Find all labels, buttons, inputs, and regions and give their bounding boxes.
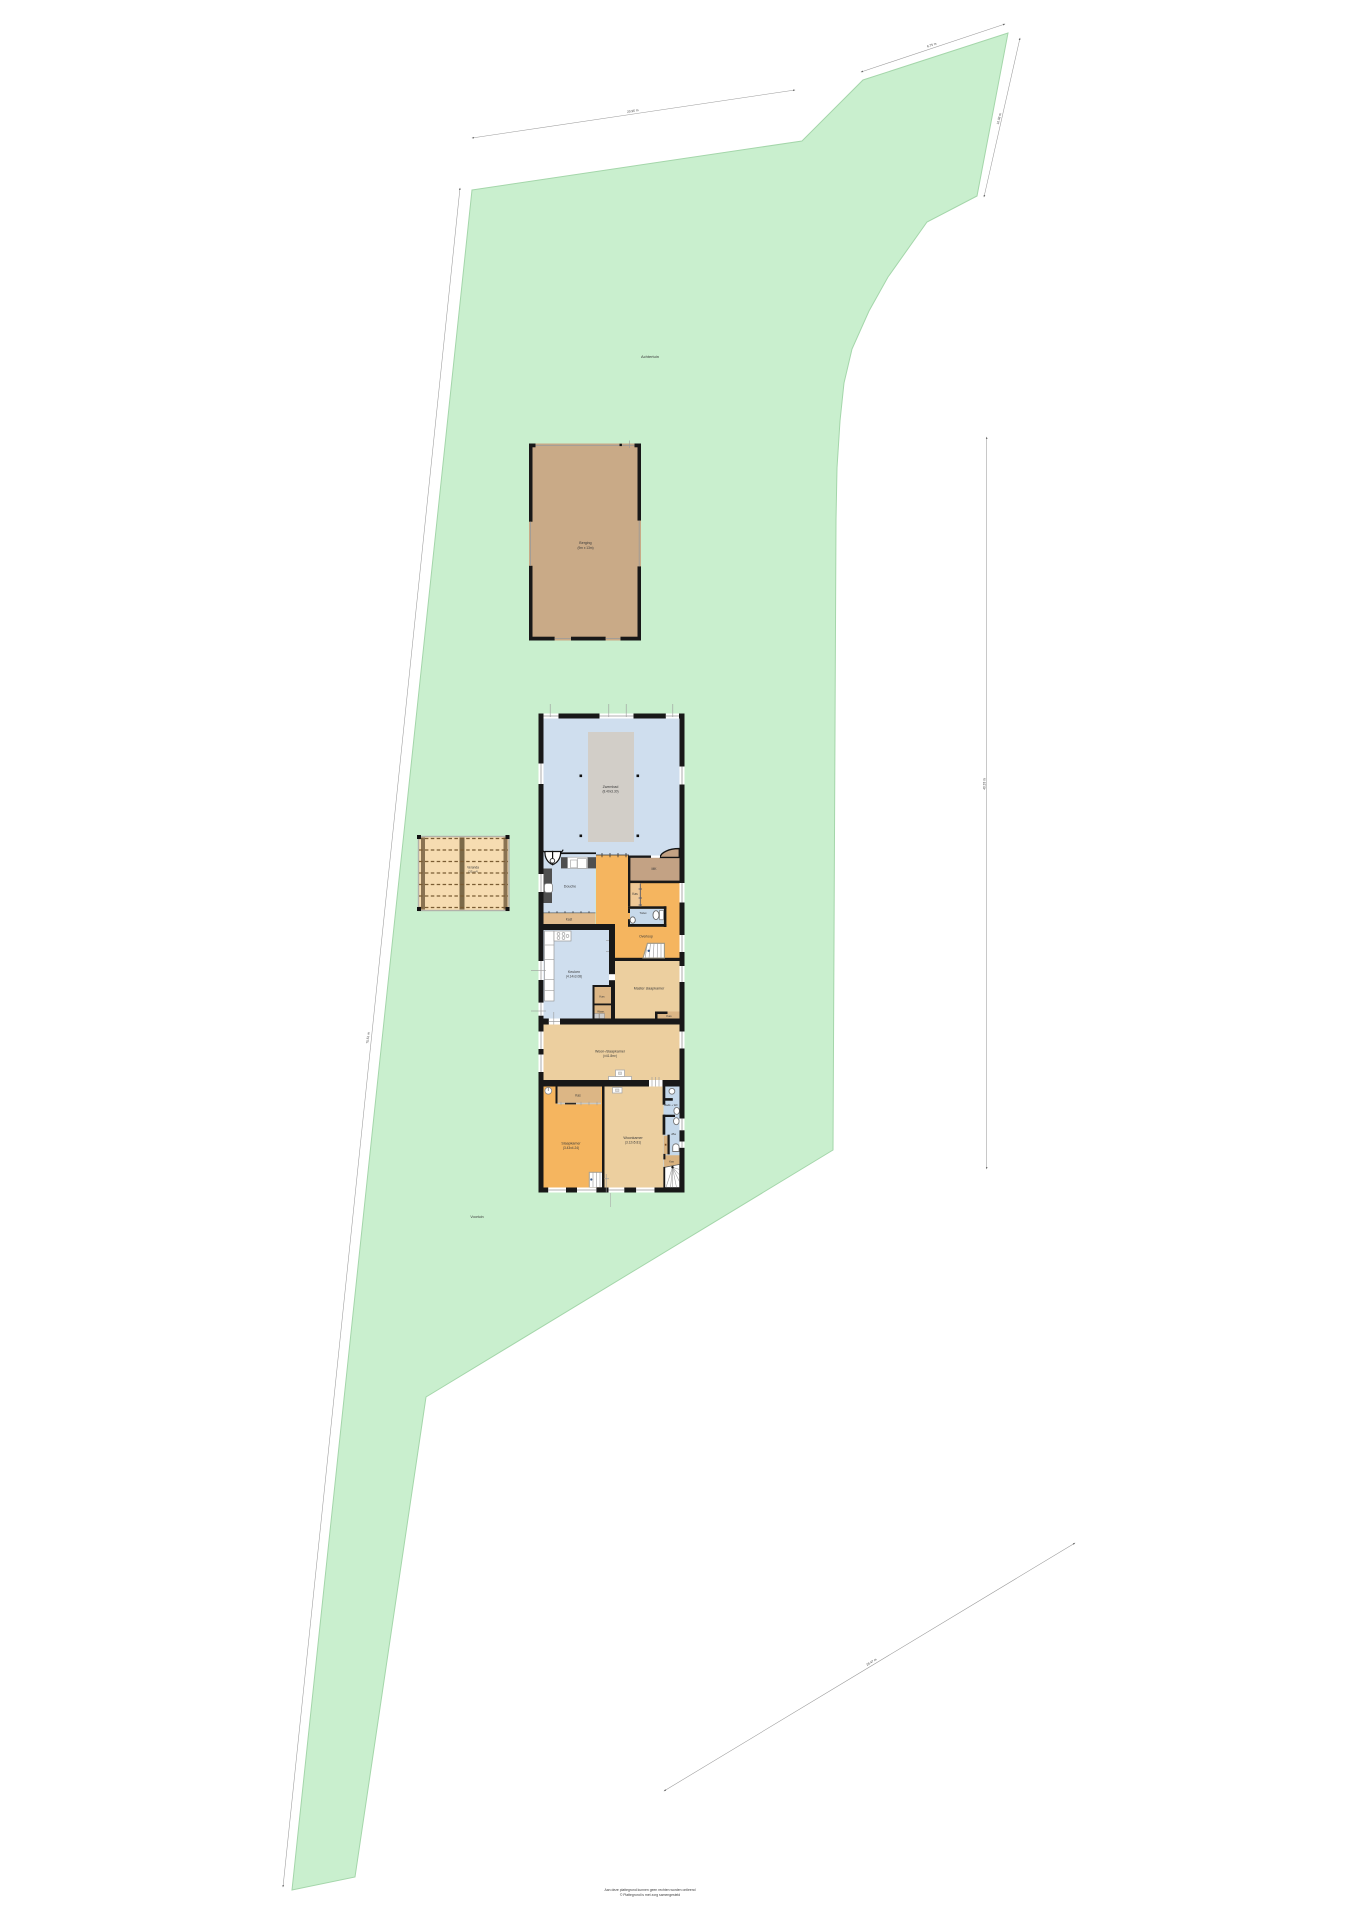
svg-text:Keuken: Keuken: [568, 970, 580, 974]
svg-text:Douche: Douche: [564, 885, 576, 889]
svg-text:Overloop: Overloop: [639, 935, 653, 939]
svg-text:(3.43x4.24): (3.43x4.24): [563, 1146, 579, 1150]
svg-text:Kast: Kast: [566, 918, 572, 922]
svg-text:Kas: Kas: [575, 1094, 581, 1098]
svg-text:Woonkamer: Woonkamer: [623, 1136, 643, 1140]
svg-text:Slaapkamer: Slaapkamer: [561, 1142, 581, 1146]
svg-text:Woon-/slaapkamer: Woon-/slaapkamer: [595, 1050, 626, 1054]
svg-text:Zwembad: Zwembad: [603, 785, 619, 789]
svg-text:Berging: Berging: [579, 541, 591, 545]
svg-text:Aan deze plattegrond kunnen ge: Aan deze plattegrond kunnen geen rechten…: [604, 1888, 695, 1892]
svg-text:Kas: Kas: [669, 1159, 674, 1163]
svg-text:© Plattegrond is met zorg same: © Plattegrond is met zorg samengesteld: [620, 1893, 680, 1897]
svg-text:MK: MK: [651, 867, 657, 871]
svg-text:Toilet: Toilet: [639, 911, 646, 915]
svg-text:(8.40x3.30): (8.40x3.30): [602, 790, 618, 794]
svg-text:40.33 m: 40.33 m: [983, 778, 987, 790]
svg-text:Achtertuin: Achtertuin: [641, 354, 659, 359]
svg-text:(±41.8m²): (±41.8m²): [603, 1054, 617, 1058]
svg-text:(4.14x3.08): (4.14x3.08): [566, 975, 582, 979]
svg-text:(35 m²): (35 m²): [468, 870, 478, 874]
svg-text:(9m x 13m): (9m x 13m): [577, 546, 593, 550]
svg-text:Master slaapkamer: Master slaapkamer: [634, 987, 665, 991]
svg-text:Kas: Kas: [632, 892, 638, 896]
svg-text:Voortuin: Voortuin: [470, 1215, 483, 1219]
svg-text:(3.12x5.81): (3.12x5.81): [625, 1141, 641, 1145]
svg-text:Badk.+ Wc: Badk.+ Wc: [664, 1103, 678, 1107]
svg-text:Kas: Kas: [666, 1014, 672, 1018]
svg-text:Wasr.: Wasr.: [597, 1010, 605, 1014]
svg-text:Kas: Kas: [599, 995, 605, 999]
svg-text:xBa: xBa: [671, 1132, 676, 1136]
